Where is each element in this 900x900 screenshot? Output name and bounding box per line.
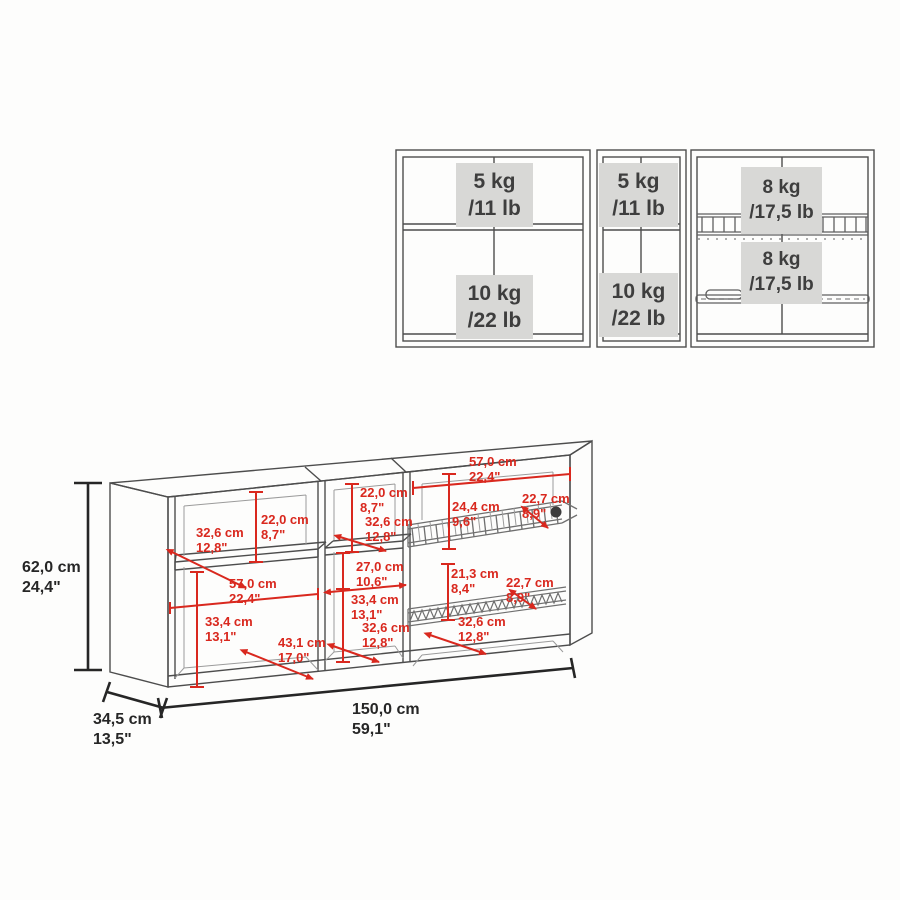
load-badge-weight: 10 kg — [456, 280, 533, 307]
load-badge-center-upper: 5 kg /11 lb — [599, 163, 678, 227]
dim-right-lower-depth: 32,6 cm 12,8" — [458, 615, 506, 644]
dim-center-lower-height: 33,4 cm 13,1" — [351, 593, 399, 622]
dim-overall-height: 62,0 cm 24,4" — [22, 558, 81, 598]
dim-right-lower-rack-height: 21,3 cm 8,4" — [451, 567, 499, 596]
load-badge-left-lower: 10 kg /22 lb — [456, 275, 533, 339]
load-badge-right-upper: 8 kg /17,5 lb — [741, 167, 822, 234]
dim-left-inner-width: 57,0 cm 22,4" — [229, 577, 277, 606]
load-badge-weight: 8 kg — [741, 176, 822, 201]
dim-right-upper-rack-depth: 22,7 cm 8,9" — [522, 492, 570, 521]
dim-left-lower-height: 33,4 cm 13,1" — [205, 615, 253, 644]
load-badge-weight: 5 kg — [456, 168, 533, 195]
load-badge-left-upper: 5 kg /11 lb — [456, 163, 533, 227]
load-badge-alt: /11 lb — [599, 195, 678, 222]
dim-center-upper-height: 22,0 cm 8,7" — [360, 486, 408, 515]
load-badge-alt: /22 lb — [599, 305, 678, 332]
wall-cabinet-spec-diagram: 5 kg /11 lb 10 kg /22 lb 5 kg /11 lb 10 … — [0, 0, 900, 900]
load-badge-alt: /17,5 lb — [741, 273, 822, 298]
dim-left-shelf-depth: 32,6 cm 12,8" — [196, 526, 244, 555]
load-badge-right-lower: 8 kg /17,5 lb — [741, 242, 822, 304]
dim-left-upper-height: 22,0 cm 8,7" — [261, 513, 309, 542]
dim-right-upper-rack-height: 24,4 cm 9,6" — [452, 500, 500, 529]
load-badge-alt: /17,5 lb — [741, 201, 822, 226]
load-badge-weight: 10 kg — [599, 278, 678, 305]
dim-center-inner-width: 27,0 cm 10,6" — [356, 560, 404, 589]
dim-right-lower-rack-depth: 22,7 cm 8,9" — [506, 576, 554, 605]
dim-center-lower-depth: 32,6 cm 12,8" — [362, 621, 410, 650]
load-badge-alt: /11 lb — [456, 195, 533, 222]
dim-right-inner-width: 57,0 cm 22,4" — [469, 455, 517, 484]
diagram-linework — [0, 0, 900, 900]
dim-left-lower-diagonal: 43,1 cm 17,0" — [278, 636, 326, 665]
dim-center-shelf-depth: 32,6 cm 12,8" — [365, 515, 413, 544]
load-badge-center-lower: 10 kg /22 lb — [599, 273, 678, 337]
load-badge-weight: 8 kg — [741, 248, 822, 273]
dim-overall-depth: 34,5 cm 13,5" — [93, 710, 152, 750]
dim-overall-width: 150,0 cm 59,1" — [352, 700, 420, 740]
load-badge-weight: 5 kg — [599, 168, 678, 195]
load-badge-alt: /22 lb — [456, 307, 533, 334]
